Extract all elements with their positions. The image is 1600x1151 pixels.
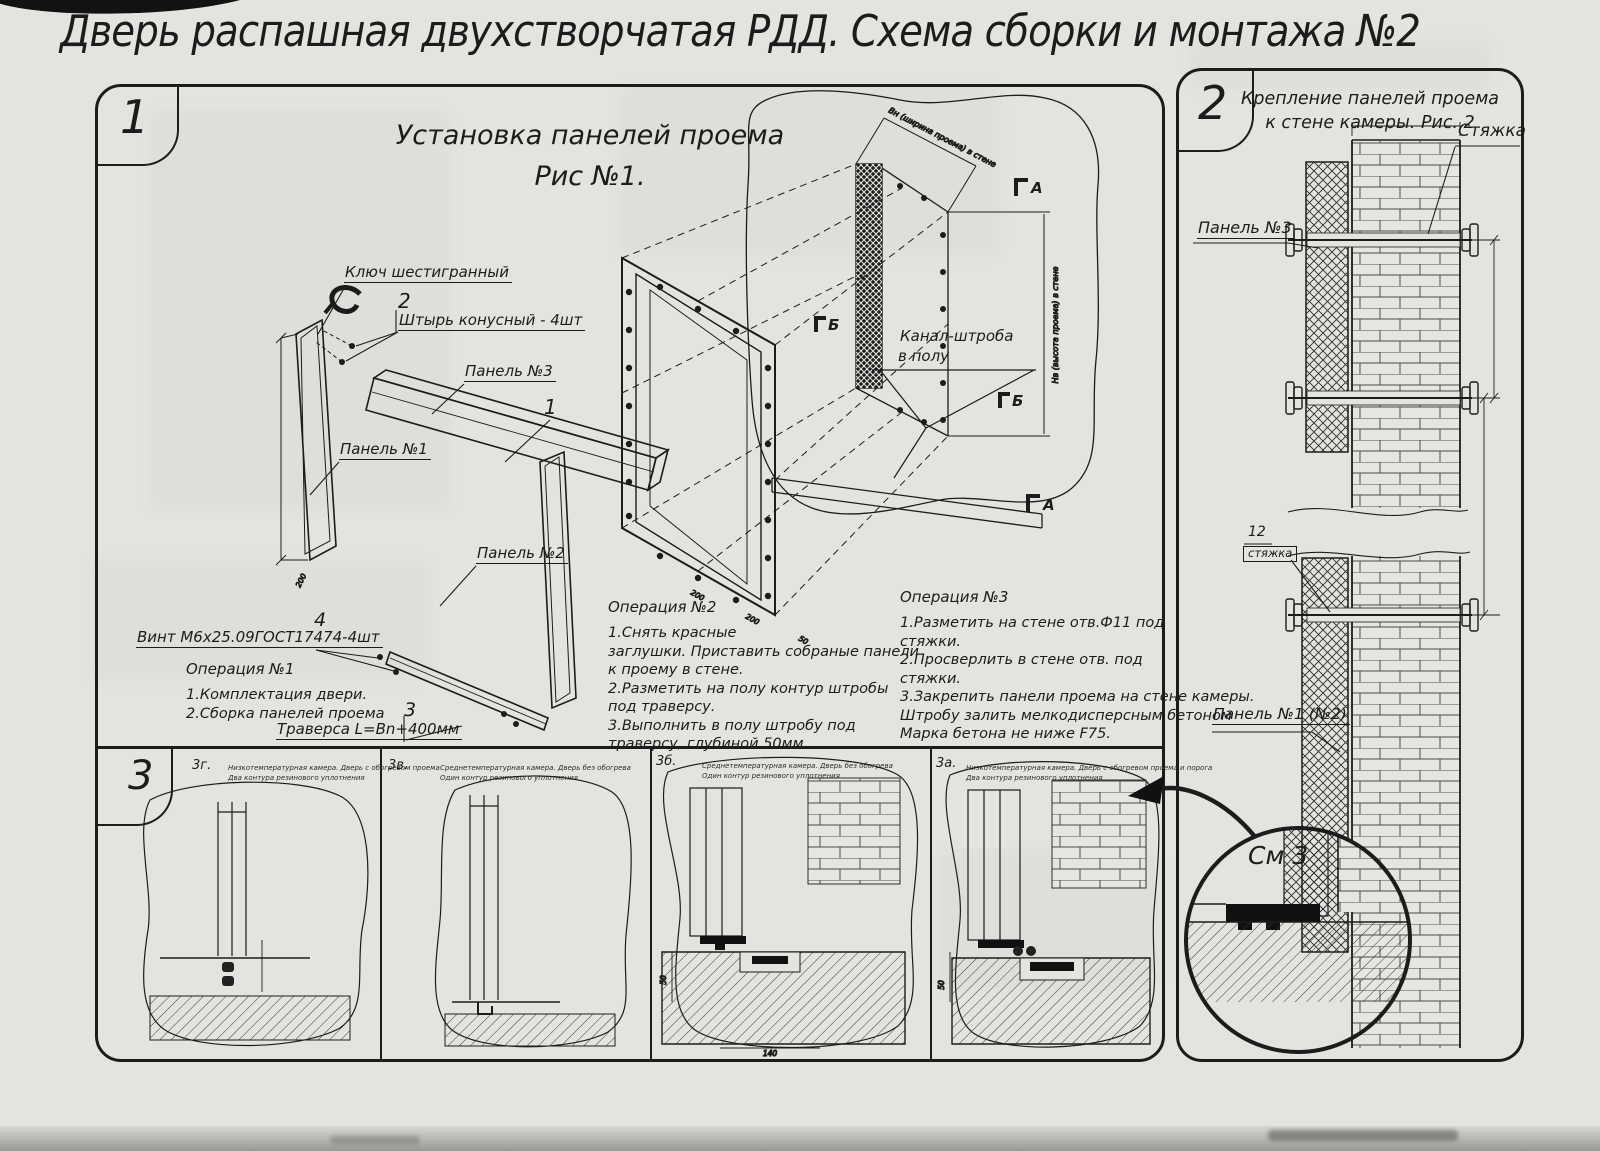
section-mark-b: Б bbox=[828, 317, 839, 334]
operation-2-step: заглушки. Приставить собраные панели bbox=[608, 643, 919, 662]
label-floor-channel-line1: Канал-штроба bbox=[900, 328, 1013, 345]
operation-2-step: 2.Разметить на полу контур штробы bbox=[608, 680, 919, 699]
detail-caption-line: Среднетемпературная камера. Дверь без об… bbox=[440, 764, 631, 774]
label-hex-key: Ключ шестигранный bbox=[344, 264, 512, 283]
fig1-title-line2: Рис №1. bbox=[380, 157, 800, 198]
section-mark-b: Б bbox=[1012, 393, 1023, 410]
drawing-sheet: Дверь распашная двухстворчатая РДД. Схем… bbox=[0, 0, 1600, 1151]
callout-1: 1 bbox=[544, 396, 557, 418]
label-panel-2: Панель №2 bbox=[476, 545, 568, 564]
label-panel-3-fig2: Панель №3 bbox=[1197, 219, 1295, 239]
fig1-panel-border bbox=[95, 84, 1165, 1062]
detail-caption-line: Один контур резинового уплотнения bbox=[440, 774, 631, 784]
operation-1-step: 1.Комплектация двери. bbox=[186, 686, 385, 705]
detail-caption-line: Среднетемпературная камера. Дверь без об… bbox=[702, 762, 893, 772]
sheet-title: Дверь распашная двухстворчатая РДД. Схем… bbox=[60, 6, 1420, 57]
fig2-title-line1: Крепление панелей проема bbox=[1240, 88, 1500, 112]
fig1-title-line1: Установка панелей проема bbox=[380, 116, 800, 157]
detail-caption: Среднетемпературная камера. Дверь без об… bbox=[702, 762, 893, 782]
operation-2-title: Операция №2 bbox=[608, 598, 919, 617]
operation-2-step: 1.Снять красные bbox=[608, 624, 919, 643]
operation-1-title: Операция №1 bbox=[186, 660, 385, 679]
detail-id: 3г. bbox=[192, 758, 211, 773]
operation-3-step: стяжки. bbox=[900, 633, 1254, 652]
section-mark-a: А bbox=[1031, 180, 1043, 197]
callout-12: 12 bbox=[1248, 525, 1266, 540]
detail-caption-line: Два контура резинового уплотнения bbox=[966, 774, 1212, 784]
fig3-cell-divider bbox=[380, 749, 382, 1060]
operation-1-step: 2.Сборка панелей проема bbox=[186, 705, 385, 724]
label-floor-channel-line2: в полу bbox=[898, 348, 949, 365]
operation-3-step: Марка бетона не ниже F75. bbox=[900, 725, 1254, 744]
operation-2-step: траверсу, глубиной 50мм. bbox=[608, 735, 919, 754]
label-screw: Винт М6х25.09ГОСТ17474-4шт bbox=[136, 629, 383, 648]
operation-3-step: 1.Разметить на стене отв.Ф11 под bbox=[900, 614, 1254, 633]
operation-1: Операция №1 1.Комплектация двери. 2.Сбор… bbox=[186, 660, 385, 723]
fig2-number: 2 bbox=[1198, 80, 1227, 126]
fig1-title: Установка панелей проема Рис №1. bbox=[380, 116, 800, 197]
fig1-number: 1 bbox=[120, 94, 149, 140]
detail-id: 3а. bbox=[936, 756, 956, 771]
detail-caption-line: Низкотемпературная камера. Дверь с обогр… bbox=[966, 764, 1212, 774]
fig3-cell-divider bbox=[650, 749, 652, 1060]
scan-smudge bbox=[330, 1136, 420, 1144]
label-tie: Стяжка bbox=[1458, 122, 1526, 141]
operation-3-step: стяжки. bbox=[900, 670, 1254, 689]
label-traverse: Траверса L=Bn+400мм bbox=[276, 721, 462, 740]
fig3-cell-divider bbox=[930, 749, 932, 1060]
operation-2-step: к проему в стене. bbox=[608, 661, 919, 680]
label-panel-3: Панель №3 bbox=[464, 363, 556, 382]
detail-caption: Низкотемпературная камера. Дверь с обогр… bbox=[966, 764, 1212, 784]
operation-2-step: 3.Выполнить в полу штробу под bbox=[608, 717, 919, 736]
label-panel-1: Панель №1 bbox=[339, 441, 431, 460]
operation-3-step: Штробу залить мелкодисперсным бетоном bbox=[900, 707, 1254, 726]
detail-id: 3б. bbox=[656, 754, 676, 769]
detail-caption: Среднетемпературная камера. Дверь без об… bbox=[440, 764, 631, 784]
label-cone-pin: Штырь конусный - 4шт bbox=[398, 312, 585, 331]
label-tie-boxed: стяжка bbox=[1243, 546, 1297, 562]
callout-3: 3 bbox=[404, 700, 416, 721]
detail-caption-line: Два контура резинового уплотнения bbox=[228, 774, 440, 784]
operation-2-step: под траверсу. bbox=[608, 698, 919, 717]
label-see-detail-3: См 3 bbox=[1248, 842, 1308, 870]
callout-2: 2 bbox=[398, 290, 411, 312]
detail-caption-line: Один контур резинового уплотнения bbox=[702, 772, 893, 782]
scan-smudge bbox=[1268, 1130, 1458, 1141]
section-mark-a: А bbox=[1043, 497, 1055, 514]
detail-id: 3в. bbox=[388, 758, 408, 773]
operation-3-step: 3.Закрепить панели проема на стене камер… bbox=[900, 688, 1254, 707]
operation-3: Операция №3 1.Разметить на стене отв.Ф11… bbox=[900, 588, 1254, 744]
operation-3-title: Операция №3 bbox=[900, 588, 1254, 607]
label-panel-1-2: Панель №1 (№2) bbox=[1212, 706, 1350, 725]
operation-3-step: 2.Просверлить в стене отв. под bbox=[900, 651, 1254, 670]
fig3-number: 3 bbox=[128, 756, 153, 796]
operation-2: Операция №2 1.Снять красные заглушки. Пр… bbox=[608, 598, 919, 754]
